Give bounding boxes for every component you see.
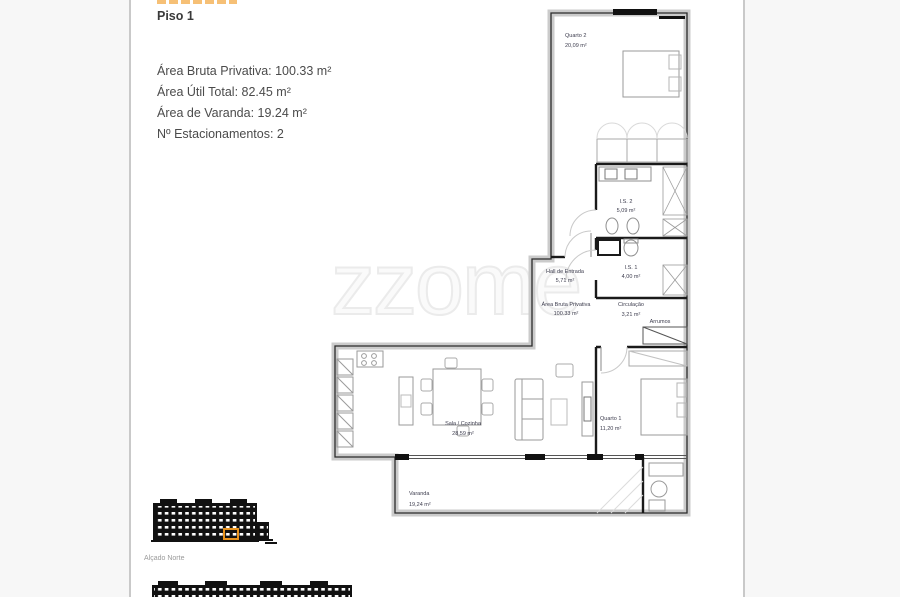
area-quarto2: 20,09 m² — [565, 43, 587, 49]
elevation-north — [150, 496, 282, 551]
window-bar — [659, 16, 685, 19]
label-varanda: Varanda — [409, 491, 430, 497]
exterior-walls — [335, 9, 687, 513]
shaft-hatch-2 — [663, 265, 687, 295]
quarto1-furniture — [629, 351, 687, 435]
spec-estacionamentos: Nº Estacionamentos: 2 — [157, 124, 331, 145]
elevation-north-label: Alçado Norte — [144, 555, 184, 562]
label-quarto1: Quarto 1 — [600, 416, 621, 422]
area-circulacao: 3,21 m² — [622, 312, 641, 318]
floorplan: Quarto 2 20,09 m² I.S. 2 5,09 m² I.S. 1 … — [329, 7, 695, 524]
area-quarto1: 11,20 m² — [600, 426, 621, 432]
label-quarto2: Quarto 2 — [565, 33, 586, 39]
varanda-window-wall — [395, 454, 687, 460]
elevation-clipped-svg — [150, 579, 365, 597]
spec-area-varanda: Área de Varanda: 19.24 m² — [157, 103, 331, 124]
arrumos-closet — [643, 327, 687, 344]
area-abp: 100.33 m² — [554, 311, 579, 317]
floorplan-svg: Quarto 2 20,09 m² I.S. 2 5,09 m² I.S. 1 … — [329, 7, 695, 519]
label-hall: Hall de Entrada — [546, 269, 585, 275]
spec-area-bruta: Área Bruta Privativa: 100.33 m² — [157, 61, 331, 82]
window-bar — [613, 9, 657, 15]
spec-list: Área Bruta Privativa: 100.33 m² Área Úti… — [157, 61, 331, 145]
varanda-tech — [597, 463, 683, 513]
label-arrumos: Arrumos — [650, 319, 671, 325]
label-is2: I.S. 2 — [620, 199, 633, 205]
label-abp: Área Bruta Privativa — [542, 301, 592, 308]
quarto2-furniture — [597, 51, 687, 162]
page-title-clipped — [157, 0, 237, 4]
area-varanda: 19,24 m² — [409, 502, 431, 508]
document-page: Piso 1 Área Bruta Privativa: 100.33 m² Á… — [129, 0, 745, 597]
label-is1: I.S. 1 — [625, 265, 638, 271]
area-sala: 28,59 m² — [452, 431, 474, 437]
is2-fixtures — [599, 167, 687, 236]
area-is2: 5,09 m² — [617, 208, 636, 214]
interior-walls — [551, 164, 687, 513]
shaft-hatch — [663, 167, 687, 236]
is1-fixtures — [598, 239, 687, 295]
label-circulacao: Circulação — [618, 302, 644, 308]
screenshot-canvas: Piso 1 Área Bruta Privativa: 100.33 m² Á… — [0, 0, 900, 597]
floor-label: Piso 1 — [157, 9, 194, 23]
elevation-north-svg — [150, 496, 282, 546]
spec-area-util: Área Útil Total: 82.45 m² — [157, 82, 331, 103]
area-is1: 4,00 m² — [622, 274, 641, 280]
area-hall: 5,71 m² — [556, 278, 575, 284]
room-labels: Quarto 2 20,09 m² I.S. 2 5,09 m² I.S. 1 … — [409, 33, 671, 508]
elevation-clipped — [150, 579, 365, 597]
label-sala: Sala / Cozinha — [445, 421, 482, 427]
living-furniture — [515, 364, 593, 440]
kitchen-furniture — [337, 351, 413, 447]
